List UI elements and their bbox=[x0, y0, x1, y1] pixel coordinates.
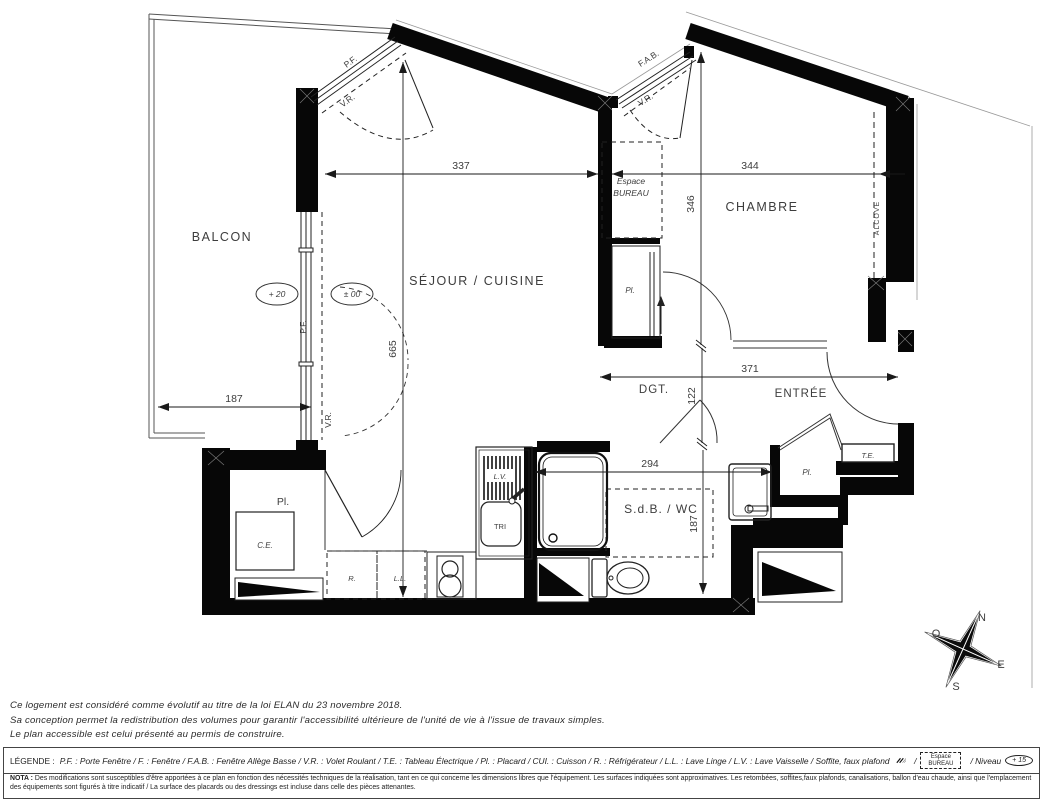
legend-separator: / bbox=[914, 756, 916, 766]
floor-plan-drawing: N O E S BALCON SÉJOUR / CUISINE CHAMBRE … bbox=[0, 0, 1045, 696]
label-vr-fab: V.R. bbox=[636, 91, 655, 108]
label-r: R. bbox=[348, 574, 356, 583]
nota-bar: NOTA : Des modifications sont susceptibl… bbox=[3, 773, 1040, 799]
nota-text: Des modifications sont susceptibles d'êt… bbox=[10, 775, 1031, 791]
chambre-placard bbox=[612, 246, 665, 338]
compass-e: E bbox=[997, 659, 1004, 671]
legend-items: P.F. : Porte Fenêtre / F. : Fenêtre / F.… bbox=[60, 756, 890, 766]
room-sejour: SÉJOUR / CUISINE bbox=[409, 273, 545, 288]
legend-niveau-oval: + 15 bbox=[1005, 755, 1033, 766]
dim-344: 344 bbox=[741, 160, 759, 172]
dim-665: 665 bbox=[387, 340, 399, 358]
label-pl-entree: Pl. bbox=[802, 468, 811, 477]
label-vr-angled: V.R. bbox=[338, 92, 357, 109]
note-line-2: Sa conception permet la redistribution d… bbox=[10, 714, 605, 729]
compass-s: S bbox=[952, 681, 959, 693]
entrance-door-arc bbox=[827, 352, 898, 424]
dim-187-sdb: 187 bbox=[688, 515, 700, 533]
room-balcon: BALCON bbox=[192, 230, 252, 244]
walls bbox=[202, 31, 914, 615]
dim-294: 294 bbox=[641, 458, 659, 470]
label-tri: TRI bbox=[494, 522, 506, 531]
label-fab: F.A.B. bbox=[636, 48, 660, 69]
compass-n: N bbox=[978, 612, 986, 624]
floor-plan-page: N O E S BALCON SÉJOUR / CUISINE CHAMBRE … bbox=[0, 0, 1045, 800]
chambre-door-arc bbox=[663, 272, 731, 340]
construction-lines bbox=[396, 12, 1032, 688]
legend-espace-line2: BUREAU bbox=[928, 761, 953, 767]
note-line-1: Ce logement est considéré comme évolutif… bbox=[10, 699, 605, 714]
toilet bbox=[592, 559, 649, 597]
label-pl-chambre: Pl. bbox=[625, 286, 634, 295]
sdb-door bbox=[660, 400, 717, 443]
window-fab bbox=[616, 52, 696, 139]
legend-espace-bureau-icon: Espace BUREAU bbox=[920, 752, 961, 769]
nota-title: NOTA : bbox=[10, 775, 33, 782]
room-entree: ENTRÉE bbox=[775, 387, 828, 400]
dim-371: 371 bbox=[741, 363, 759, 375]
room-sdb: S.d.B. / WC bbox=[624, 502, 698, 516]
kitchen-sink-unit bbox=[476, 447, 532, 559]
dim-337: 337 bbox=[452, 160, 470, 172]
room-chambre: CHAMBRE bbox=[725, 200, 798, 214]
entree-placard-doors bbox=[778, 414, 843, 450]
legend-espace-line1: Espace bbox=[931, 754, 951, 760]
room-alcove: ALCOVE bbox=[874, 201, 881, 235]
label-ll: L.L. bbox=[394, 574, 407, 583]
label-ce: C.E. bbox=[257, 541, 273, 550]
bathtub bbox=[539, 453, 607, 550]
soffit-hatch-icon bbox=[896, 753, 907, 768]
room-dgt: DGT. bbox=[639, 384, 669, 396]
label-vr-left: V.R. bbox=[323, 412, 333, 428]
dim-122: 122 bbox=[686, 387, 698, 405]
cellier-placard bbox=[236, 470, 401, 570]
dim-346: 346 bbox=[685, 195, 697, 213]
legend-title: LÉGENDE : bbox=[10, 756, 55, 766]
level-sejour: ± 00 bbox=[344, 289, 361, 299]
label-pf-left: P.F. bbox=[298, 320, 308, 334]
legend-niveau-label: / Niveau bbox=[970, 756, 1001, 766]
legend-bar: LÉGENDE : P.F. : Porte Fenêtre / F. : Fe… bbox=[3, 747, 1040, 774]
label-lv: L.V. bbox=[494, 472, 507, 481]
balcony-railing bbox=[149, 14, 397, 438]
label-te: T.E. bbox=[861, 451, 874, 460]
espace-bureau-line2: BUREAU bbox=[613, 188, 649, 198]
compass-rose: N O E S bbox=[908, 594, 1019, 696]
french-door-arcs bbox=[340, 287, 408, 436]
compass-o: O bbox=[932, 628, 941, 640]
dim-187-balcon: 187 bbox=[225, 393, 243, 405]
level-balcon: + 20 bbox=[269, 289, 286, 299]
note-line-3: Le plan accessible est celui présenté au… bbox=[10, 728, 605, 743]
label-pl-cellier: Pl. bbox=[277, 496, 289, 508]
evolutive-notes: Ce logement est considéré comme évolutif… bbox=[10, 699, 605, 743]
partition-lines bbox=[325, 246, 827, 551]
espace-bureau-line1: Espace bbox=[617, 176, 646, 186]
label-pf-angled: P.F. bbox=[342, 54, 359, 70]
window-pf-angled bbox=[311, 37, 433, 139]
